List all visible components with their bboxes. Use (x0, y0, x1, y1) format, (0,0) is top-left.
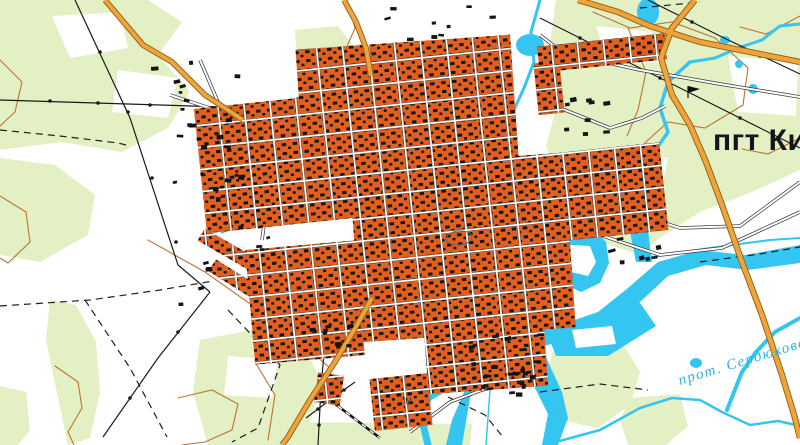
settlement-title-label: пгт Ки (713, 124, 800, 157)
topographic-map[interactable]: пгт Ки прот. Сердюкова N (0, 0, 800, 445)
map-letter-label: N (405, 396, 412, 406)
map-canvas[interactable]: пгт Ки прот. Сердюкова N (0, 0, 800, 445)
